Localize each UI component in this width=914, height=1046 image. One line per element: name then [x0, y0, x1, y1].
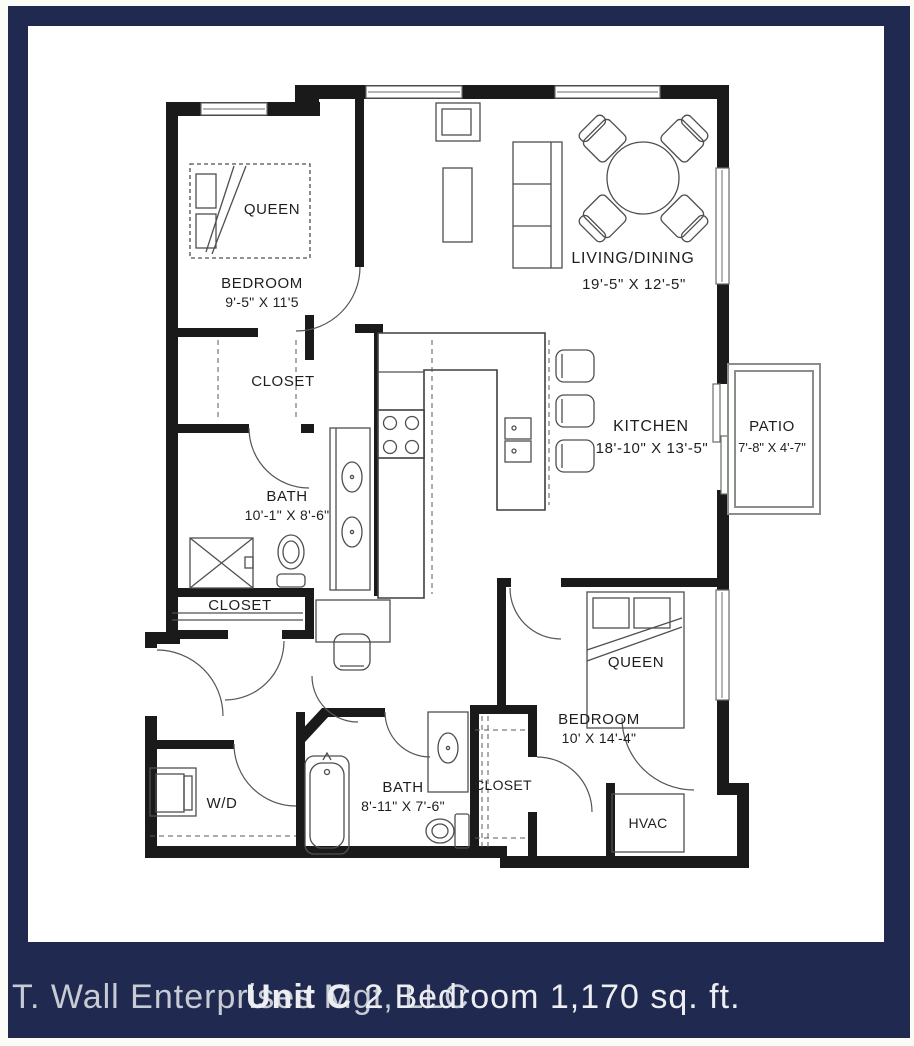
- kitchen-label: KITCHEN: [613, 418, 689, 435]
- closet2-label: CLOSET: [208, 597, 272, 614]
- hall-door-arc: [225, 641, 284, 700]
- bar-stools: [556, 350, 594, 472]
- bath1-dims: 10'-1" X 8'-6": [245, 507, 330, 523]
- double-vanity: [330, 428, 370, 590]
- floor-plan-drawing: QUEEN BEDROOM 9'-5" X 11'5 CLOSET BATH 1…: [0, 0, 914, 1046]
- patio-deck: [728, 364, 820, 514]
- shower: [190, 538, 253, 588]
- bedroom1-window: [201, 103, 267, 115]
- bedroom2-label: BEDROOM: [558, 711, 640, 728]
- patio-sliding-door: [713, 384, 728, 494]
- stove: [378, 410, 424, 458]
- unit-name: Unit C: [246, 978, 352, 1016]
- closet3-label: CLOSET: [474, 777, 532, 793]
- vanity-2: [428, 712, 468, 792]
- bedroom2-door-arc: [510, 588, 561, 639]
- unit-details: 2 Bedroom 1,170 sq. ft.: [364, 978, 740, 1016]
- unit-title: Unit C2 Bedroom 1,170 sq. ft.: [246, 980, 741, 1014]
- laundry-door-arc: [234, 744, 296, 806]
- scanned-floor-plan-page: QUEEN BEDROOM 9'-5" X 11'5 CLOSET BATH 1…: [0, 0, 914, 1046]
- windows: [201, 86, 729, 700]
- dining-table: [607, 142, 679, 214]
- bath1-label: BATH: [266, 488, 307, 505]
- bath2-label: BATH: [382, 779, 423, 796]
- closet1-label: CLOSET: [251, 373, 315, 390]
- patio-label: PATIO: [749, 418, 795, 435]
- patio-dims: 7'-8" X 4'-7": [738, 440, 806, 455]
- hvac-label: HVAC: [628, 815, 667, 831]
- closet3-door-arc: [537, 757, 592, 812]
- bedroom1-bed-label: QUEEN: [244, 201, 300, 218]
- bedroom2-bed-label: QUEEN: [608, 654, 664, 671]
- laundry-label: W/D: [207, 795, 238, 812]
- dining-chairs: [576, 112, 712, 246]
- kitchen-dims: 18'-10" X 13'-5": [596, 440, 709, 457]
- sofa: [513, 142, 562, 268]
- bedroom2-dims: 10' X 14'-4": [562, 730, 637, 746]
- living-label: LIVING/DINING: [571, 250, 694, 267]
- toilet-2: [426, 814, 469, 848]
- living-top-window-2: [555, 86, 660, 98]
- living-furniture: [436, 103, 711, 268]
- bedroom1-label: BEDROOM: [221, 275, 303, 292]
- bath2-door-arc: [385, 712, 430, 757]
- hvac-door-arc: [622, 718, 694, 790]
- bedroom1-dims: 9'-5" X 11'5: [225, 294, 299, 310]
- kitchen-fixtures: [378, 333, 594, 598]
- closet2-shelves: [172, 613, 303, 620]
- living-dims: 19'-5" X 12'-5": [582, 276, 686, 293]
- bath2-dims: 8'-11" X 7'-6": [361, 798, 445, 814]
- living-top-window-1: [366, 86, 462, 98]
- desk-and-chair: [316, 600, 390, 670]
- bedroom2-window: [716, 590, 729, 700]
- toilet-1: [277, 535, 305, 587]
- armchair: [436, 103, 480, 141]
- bath1-door-arc: [249, 428, 309, 488]
- entry-door-arc: [157, 650, 223, 716]
- bathtub: [305, 753, 349, 854]
- kitchen-counter: [378, 333, 545, 598]
- living-right-window: [716, 168, 729, 284]
- coffee-table: [443, 168, 472, 242]
- walls: [145, 85, 749, 868]
